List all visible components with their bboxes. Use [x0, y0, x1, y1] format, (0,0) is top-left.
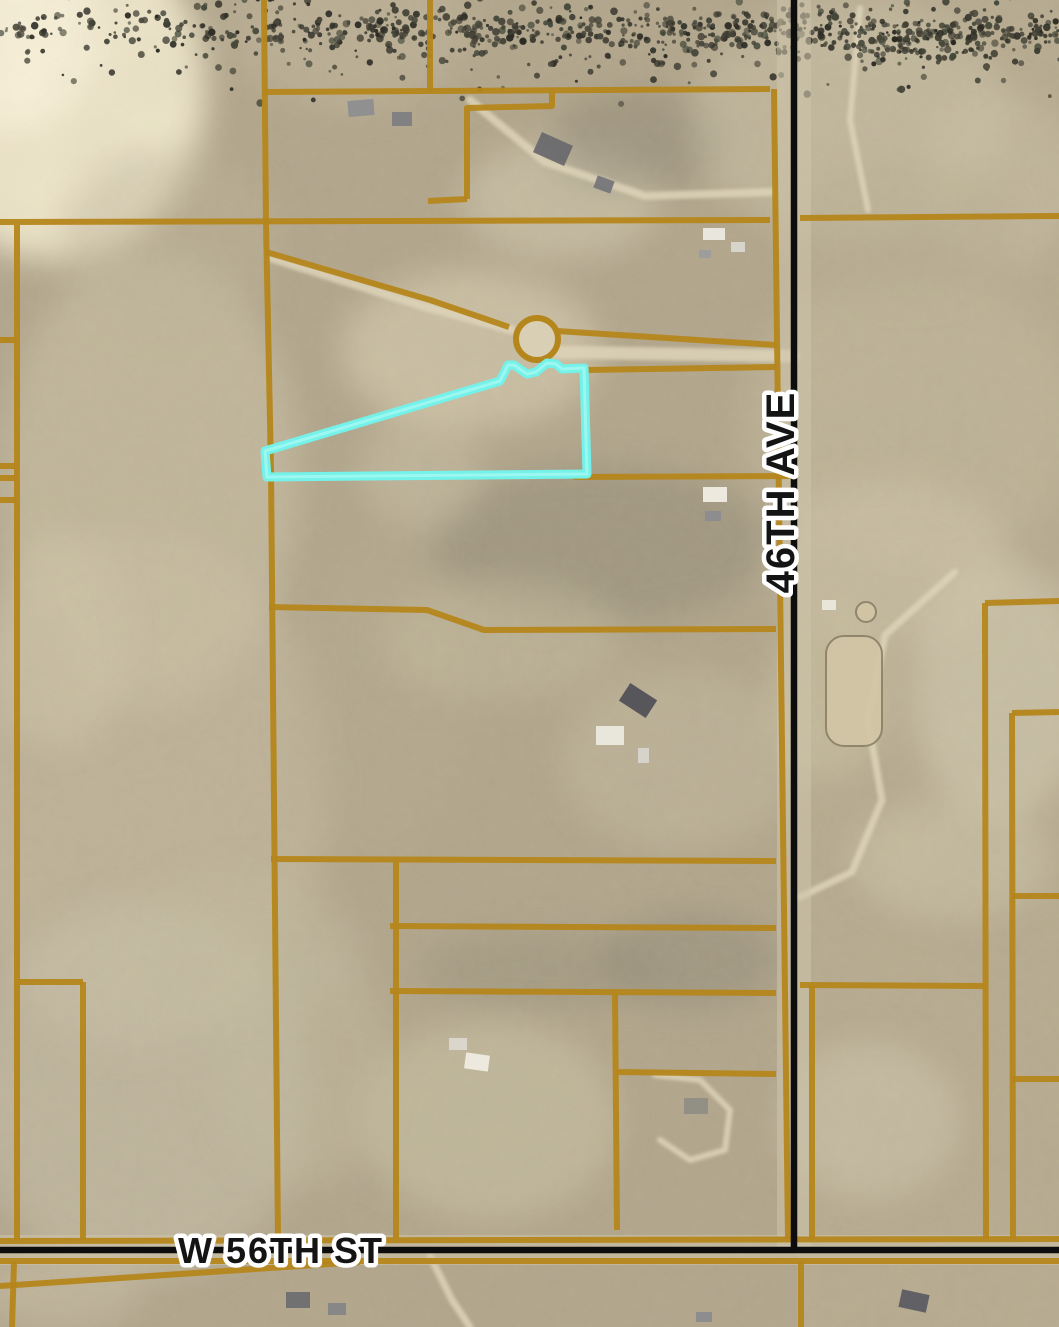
tree	[492, 28, 500, 36]
tree	[308, 48, 312, 52]
tree	[983, 54, 988, 59]
tree	[326, 28, 330, 32]
building	[703, 487, 727, 502]
tree	[472, 17, 475, 20]
tree	[483, 19, 486, 22]
tree	[948, 32, 956, 40]
tree	[87, 18, 94, 25]
w-56th-st-road-line	[0, 1247, 1059, 1254]
tree	[550, 6, 553, 9]
tree	[620, 27, 627, 34]
tree	[508, 10, 513, 15]
tree	[994, 0, 999, 5]
tree	[606, 30, 611, 35]
tree	[463, 27, 466, 30]
tree	[306, 48, 308, 50]
tree	[845, 54, 852, 61]
tree	[488, 26, 493, 31]
tree	[951, 40, 956, 45]
tree	[160, 10, 166, 16]
tree	[25, 50, 30, 55]
tree	[837, 36, 842, 41]
tree	[880, 57, 886, 63]
tree	[939, 47, 944, 52]
parcel-boundary-line	[800, 216, 1059, 218]
tree	[767, 27, 771, 31]
tree	[77, 12, 83, 18]
tree	[901, 24, 905, 28]
tree	[387, 12, 391, 16]
tree	[189, 32, 195, 38]
tree	[399, 75, 405, 81]
tree	[114, 31, 117, 34]
tree	[854, 22, 857, 25]
tree	[303, 27, 309, 33]
aerial-parcel-map: 46TH AVE W 56TH ST	[0, 0, 1059, 1327]
tree	[548, 61, 554, 67]
tree	[584, 7, 588, 11]
parcel-boundary-line	[985, 603, 986, 1239]
tree	[109, 69, 115, 75]
tree	[728, 29, 736, 37]
tree	[234, 39, 239, 44]
parcel-boundary-line	[617, 1072, 776, 1074]
tree	[141, 17, 148, 24]
tree	[851, 45, 855, 49]
tree	[597, 65, 601, 69]
parcel-map-canvas: 46TH AVE W 56TH ST	[0, 0, 1059, 1327]
tree	[729, 42, 734, 47]
tree	[224, 13, 229, 18]
tree	[857, 52, 863, 58]
tree	[972, 51, 978, 57]
tree	[274, 36, 278, 40]
tree	[664, 43, 667, 46]
tree	[325, 10, 332, 17]
tree	[384, 17, 388, 21]
tree	[618, 101, 624, 107]
tree	[493, 16, 499, 22]
tree	[154, 45, 157, 48]
tree	[439, 57, 446, 64]
round-pen	[856, 602, 876, 622]
tree	[42, 32, 48, 38]
tree	[926, 23, 931, 28]
parcel-boundary-line	[264, 89, 770, 92]
tree	[581, 31, 586, 36]
tree	[15, 32, 22, 39]
tree	[663, 17, 667, 21]
tree	[1021, 37, 1028, 44]
tree	[230, 87, 234, 91]
tree	[620, 17, 624, 21]
tree	[303, 58, 306, 61]
tree	[843, 46, 847, 50]
tree	[915, 51, 919, 55]
tree	[588, 55, 591, 58]
tree	[478, 43, 481, 46]
tree	[707, 59, 711, 63]
tree	[707, 17, 712, 22]
tree	[492, 41, 498, 47]
tree	[306, 2, 310, 6]
tree	[1028, 41, 1031, 44]
tree	[994, 22, 998, 26]
tree	[450, 48, 455, 53]
tree	[433, 15, 438, 20]
tree	[21, 27, 25, 31]
tree	[832, 13, 839, 20]
tree	[124, 27, 130, 33]
tree	[319, 42, 322, 45]
tree	[293, 2, 296, 5]
tree	[122, 33, 126, 37]
tree	[812, 38, 818, 44]
tree	[982, 41, 987, 46]
parcel-boundary-line	[586, 367, 776, 370]
tree	[580, 16, 583, 19]
tree	[858, 28, 864, 34]
tree	[584, 57, 587, 60]
tree	[897, 62, 901, 66]
tree	[843, 2, 849, 8]
terrain-noise-fine	[0, 0, 1059, 1327]
tree	[681, 23, 688, 30]
tree	[818, 12, 822, 16]
tree	[500, 38, 507, 45]
tree	[818, 33, 825, 40]
tree	[626, 18, 630, 22]
tree	[233, 10, 236, 13]
tree	[540, 40, 544, 44]
tree	[1027, 35, 1031, 39]
tree	[531, 0, 537, 6]
tree	[686, 38, 690, 42]
tree	[603, 37, 610, 44]
tree	[1009, 26, 1015, 32]
tree	[513, 25, 518, 30]
tree	[536, 7, 543, 14]
tree	[656, 22, 659, 25]
tree	[858, 40, 865, 47]
tree	[280, 48, 285, 53]
tree	[1009, 33, 1015, 39]
tree	[413, 11, 420, 18]
tree	[312, 25, 316, 29]
building	[638, 748, 649, 763]
tree	[275, 10, 279, 14]
tree	[710, 32, 715, 37]
tree	[758, 32, 764, 38]
tree	[891, 47, 896, 52]
tree	[306, 60, 313, 67]
tree	[637, 33, 643, 39]
tree	[179, 22, 184, 27]
tree	[692, 7, 696, 11]
tree	[841, 32, 844, 35]
tree	[183, 20, 187, 24]
tree	[230, 68, 237, 75]
tree	[899, 45, 904, 50]
tree	[439, 6, 446, 13]
tree	[1043, 34, 1047, 38]
tree	[871, 61, 876, 66]
tree	[569, 14, 575, 20]
tree	[850, 25, 854, 29]
tree	[559, 27, 563, 31]
tree	[622, 34, 625, 37]
46th-ave-road-line	[791, 0, 798, 1253]
tree	[343, 30, 345, 32]
tree	[936, 46, 938, 48]
building	[347, 99, 374, 117]
tree	[944, 46, 951, 53]
tree	[561, 45, 567, 51]
tree	[663, 54, 667, 58]
tree	[162, 36, 170, 44]
tree	[893, 24, 897, 28]
tree	[889, 8, 892, 11]
tree	[5, 29, 8, 32]
tree	[386, 46, 393, 53]
tree	[950, 53, 957, 60]
tree	[904, 47, 910, 53]
tree	[1032, 28, 1035, 31]
tree	[618, 40, 624, 46]
tree	[363, 18, 369, 24]
tree	[125, 12, 131, 18]
tree	[905, 35, 909, 39]
tree	[899, 50, 902, 53]
building	[705, 511, 721, 521]
tree	[221, 38, 225, 42]
tree	[88, 25, 92, 29]
tree	[745, 38, 748, 41]
tree	[921, 74, 927, 80]
tree	[391, 23, 395, 27]
tree	[1043, 24, 1051, 32]
tree	[556, 15, 563, 22]
tree	[845, 39, 849, 43]
tree	[450, 27, 453, 30]
tree	[1000, 37, 1004, 41]
tree	[651, 58, 656, 63]
tree	[356, 55, 359, 58]
tree	[100, 64, 103, 67]
tree	[946, 43, 950, 47]
tree	[828, 44, 835, 51]
parcel-boundary-line	[390, 991, 776, 993]
tree	[644, 37, 651, 44]
tree	[963, 17, 968, 22]
tree	[937, 57, 942, 62]
street-label-w-56th-st: W 56TH ST	[178, 1230, 384, 1271]
tree	[955, 51, 958, 54]
tree	[703, 27, 706, 30]
tree	[820, 24, 823, 27]
building	[696, 1312, 712, 1322]
tree	[714, 39, 718, 43]
tree	[860, 26, 863, 29]
tree	[40, 49, 45, 54]
tree	[369, 34, 374, 39]
parcel-boundary-line	[264, 0, 266, 224]
tree	[860, 60, 863, 63]
tree	[317, 32, 322, 37]
tree	[402, 24, 409, 31]
tree	[991, 50, 998, 57]
tree	[126, 4, 129, 7]
tree	[674, 63, 681, 70]
tree	[129, 37, 136, 44]
parcel-boundary-line	[0, 1239, 1059, 1241]
tree	[329, 37, 336, 44]
tree	[628, 22, 633, 27]
tree	[817, 5, 821, 9]
tree	[907, 85, 911, 89]
tree	[402, 9, 409, 16]
tree	[367, 59, 373, 65]
tree	[975, 41, 981, 47]
building	[703, 228, 725, 240]
tree	[1028, 22, 1033, 27]
tree	[770, 19, 774, 23]
tree	[985, 22, 992, 29]
tree	[687, 50, 690, 53]
tree	[725, 23, 732, 30]
tree	[1050, 10, 1053, 13]
tree	[671, 22, 674, 25]
tree	[343, 20, 350, 27]
tree	[585, 37, 592, 44]
tree	[1040, 14, 1044, 18]
tree	[479, 50, 486, 57]
tree	[832, 40, 837, 45]
tree	[480, 37, 485, 42]
tree	[317, 17, 323, 23]
tree	[566, 34, 570, 38]
tree	[497, 75, 501, 79]
tree	[741, 55, 744, 58]
tree	[975, 78, 981, 84]
tree	[31, 22, 39, 30]
tree	[308, 32, 315, 39]
tree	[316, 26, 321, 31]
parcel-boundary-line	[800, 985, 985, 986]
tree	[695, 24, 702, 31]
tree	[977, 25, 984, 32]
tree	[445, 60, 448, 63]
tree	[562, 34, 567, 39]
tree	[398, 37, 405, 44]
tree	[215, 64, 222, 71]
tree	[708, 33, 711, 36]
tree	[332, 65, 337, 70]
tree	[648, 53, 651, 56]
building	[731, 242, 745, 252]
tree	[695, 40, 700, 45]
tree	[1044, 40, 1047, 43]
tree	[169, 27, 172, 30]
tree	[1012, 59, 1018, 65]
tree	[115, 22, 118, 25]
tree	[195, 53, 198, 56]
tree	[838, 21, 841, 24]
tree	[926, 37, 930, 41]
tree	[768, 40, 771, 43]
tree	[1034, 48, 1040, 54]
tree	[770, 73, 777, 80]
tree	[950, 22, 956, 28]
tree	[939, 23, 945, 29]
tree	[919, 55, 922, 58]
tree	[742, 19, 748, 25]
tree	[845, 31, 850, 36]
tree	[395, 34, 398, 37]
tree	[418, 42, 423, 47]
tree	[588, 31, 594, 37]
tree	[759, 24, 763, 28]
tree	[868, 37, 875, 44]
tree	[211, 36, 216, 41]
building	[392, 112, 412, 126]
tree	[862, 48, 868, 54]
tree	[874, 52, 880, 58]
tree	[891, 4, 894, 7]
tree	[494, 36, 500, 42]
tree	[551, 33, 554, 36]
tree	[926, 55, 932, 61]
tree	[279, 23, 283, 27]
tree	[234, 3, 236, 5]
tree	[662, 48, 665, 51]
tree	[710, 70, 717, 77]
tree	[991, 16, 994, 19]
tree	[193, 24, 197, 28]
tree	[1048, 94, 1052, 98]
tree	[208, 29, 215, 36]
tree	[470, 68, 473, 71]
tree	[128, 21, 131, 24]
tree	[564, 3, 571, 10]
tree	[338, 14, 341, 17]
tree	[1001, 43, 1006, 48]
tree	[1033, 18, 1038, 23]
tree	[847, 18, 854, 25]
tree	[996, 15, 1002, 21]
tree	[880, 19, 885, 24]
tree	[399, 53, 406, 60]
tree	[421, 52, 427, 58]
tree	[983, 8, 987, 12]
tree	[857, 34, 861, 38]
tree	[527, 63, 530, 66]
tree	[156, 49, 160, 53]
tree	[959, 31, 963, 35]
tree	[1018, 60, 1024, 66]
tree	[394, 16, 397, 19]
tree	[748, 37, 751, 40]
tree	[764, 40, 771, 47]
tree	[569, 10, 572, 13]
tree	[988, 56, 992, 60]
tree	[201, 5, 207, 11]
tree	[1034, 37, 1038, 41]
tree	[473, 54, 476, 57]
tree	[713, 11, 719, 17]
tree	[711, 23, 715, 27]
tree	[704, 35, 707, 38]
